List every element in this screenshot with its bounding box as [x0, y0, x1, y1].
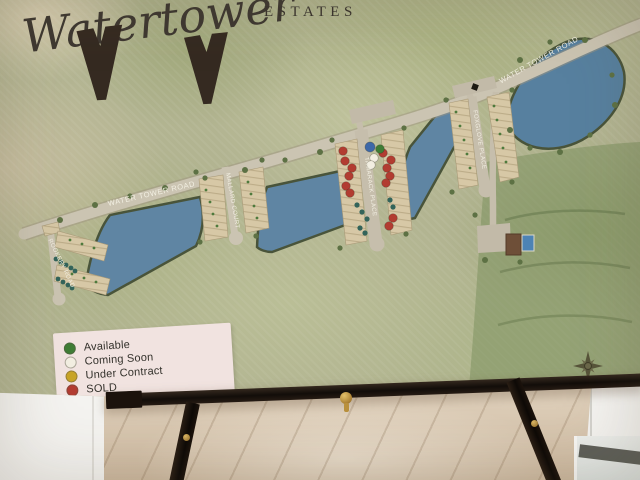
- wall-seam: [92, 386, 94, 480]
- glass-door-bottom: [574, 436, 640, 480]
- lot-status-dot: [383, 164, 392, 173]
- lot-status-dot: [387, 156, 396, 165]
- brass-screw: [183, 434, 190, 441]
- title-script: Watertower: [19, 0, 300, 64]
- lot-status-dot: [341, 157, 350, 166]
- easel-tray-end: [106, 391, 143, 409]
- lot-status-dot: [348, 164, 357, 173]
- cul-de-sac: [229, 231, 243, 245]
- amenity-building: [506, 234, 521, 255]
- lot-strip: [239, 167, 269, 233]
- lot-status-dot: [389, 214, 398, 223]
- cul-de-sac: [370, 237, 385, 252]
- lot-status-dot: [346, 189, 355, 198]
- title-caps: ESTATES: [264, 4, 357, 20]
- lot-status-dot: [345, 172, 354, 181]
- lot-status-dot: [385, 222, 394, 231]
- sold-dot-icon: [66, 384, 79, 397]
- cul-de-sac: [53, 293, 66, 306]
- lot-status-dot: [365, 142, 375, 152]
- site-plan-poster: WATER TOWER ROAD WATER TOWER ROAD ROOKER…: [0, 0, 640, 398]
- white-wall: [0, 386, 118, 480]
- lot-status-dot: [382, 179, 391, 188]
- amenity-pool: [522, 235, 534, 251]
- photo-of-site-plan: WATER TOWER ROAD WATER TOWER ROAD ROOKER…: [0, 0, 640, 480]
- coming-soon-dot-icon: [64, 356, 77, 369]
- lot-status-dot: [376, 145, 385, 154]
- legend-label: Available: [83, 339, 130, 354]
- lot-strip: [199, 175, 228, 241]
- brass-hook: [344, 403, 349, 412]
- glass-reflection: [578, 444, 640, 464]
- available-dot-icon: [63, 342, 76, 355]
- pond: [257, 170, 350, 252]
- under-contract-dot-icon: [65, 370, 78, 383]
- lot-status-dot: [339, 147, 348, 156]
- brass-screw: [531, 420, 538, 427]
